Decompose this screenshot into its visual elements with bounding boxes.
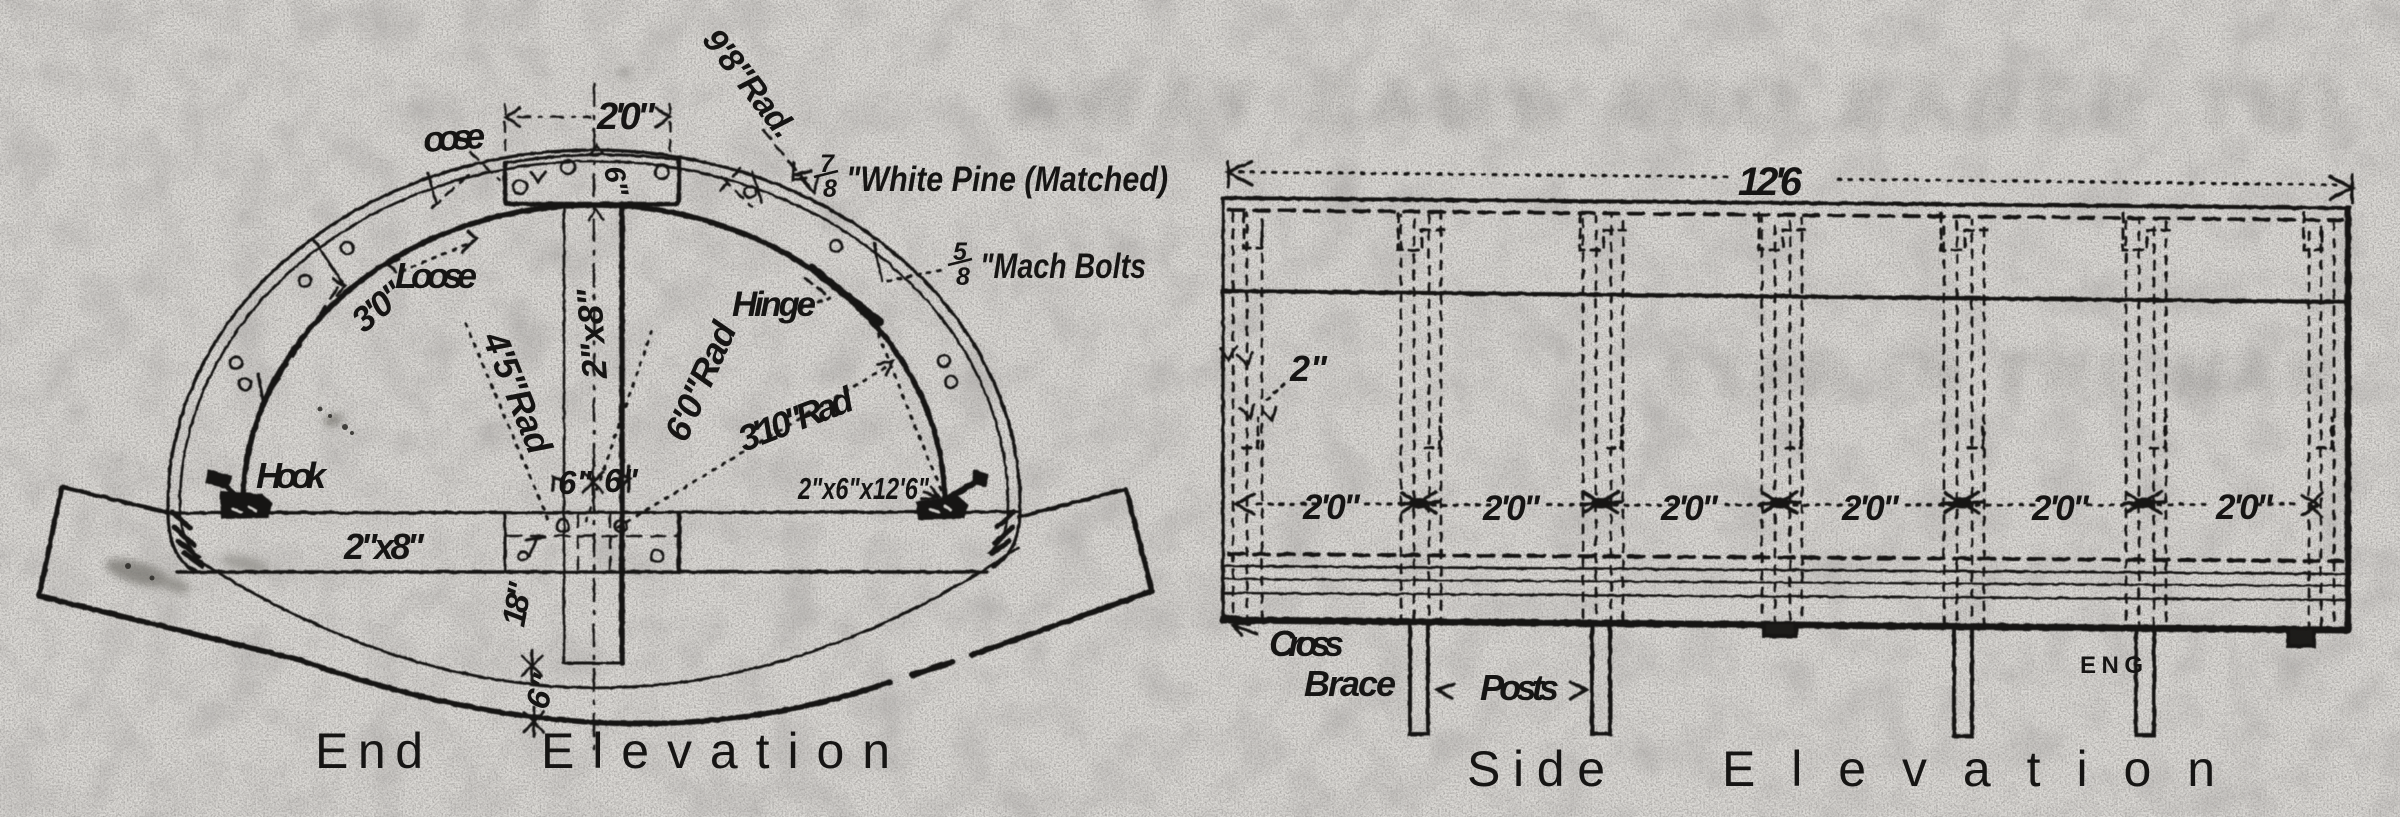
svg-text:2'0": 2'0": [1482, 489, 1540, 528]
svg-text:2"x6"x12'6": 2"x6"x12'6": [797, 471, 930, 506]
svg-text:Hinge: Hinge: [732, 285, 816, 324]
svg-text:2'0": 2'0": [1841, 489, 1899, 528]
svg-text:ENG: ENG: [2080, 652, 2150, 679]
svg-text:2"x8": 2"x8": [570, 287, 615, 381]
svg-text:Elevation: Elevation: [1722, 741, 2245, 797]
svg-text:"White Pine (Matched): "White Pine (Matched): [846, 160, 1168, 199]
svg-text:End: End: [315, 723, 447, 779]
svg-text:"Mach Bolts: "Mach Bolts: [980, 247, 1146, 286]
svg-text:12'6: 12'6: [1738, 160, 1803, 204]
svg-text:2'0": 2'0": [2031, 489, 2089, 528]
svg-text:Cross: Cross: [1269, 623, 1344, 664]
svg-text:8: 8: [956, 263, 970, 291]
svg-text:2": 2": [1289, 348, 1328, 389]
svg-text:oose: oose: [422, 115, 487, 160]
svg-text:2'0": 2'0": [1660, 489, 1718, 528]
svg-text:Loose: Loose: [395, 255, 477, 296]
svg-text:Elevation: Elevation: [541, 723, 905, 779]
svg-text:Side: Side: [1467, 741, 1617, 797]
svg-text:6": 6": [604, 462, 638, 499]
svg-text:Posts: Posts: [1480, 667, 1559, 708]
svg-text:8: 8: [823, 175, 837, 203]
svg-text:6": 6": [558, 464, 592, 501]
svg-text:2"x8": 2"x8": [343, 526, 425, 567]
svg-text:IHT ЯЗЯAЗ ОИA ЗМАЗ YAWA: IHT ЯЗЯAЗ ОИA ЗМАЗ YAWA: [995, 65, 2340, 143]
svg-text:ИAM ЗНT ИI ЯЗТЗ: ИAM ЗНT ИI ЯЗТЗ: [1651, 343, 2330, 408]
svg-text:2'0": 2'0": [1302, 488, 1360, 527]
svg-text:2'0": 2'0": [596, 96, 656, 138]
svg-text:18": 18": [494, 579, 538, 629]
svg-text:Hook: Hook: [256, 455, 328, 496]
svg-text:2'0": 2'0": [2215, 488, 2273, 527]
svg-text:Brace: Brace: [1304, 663, 1396, 704]
